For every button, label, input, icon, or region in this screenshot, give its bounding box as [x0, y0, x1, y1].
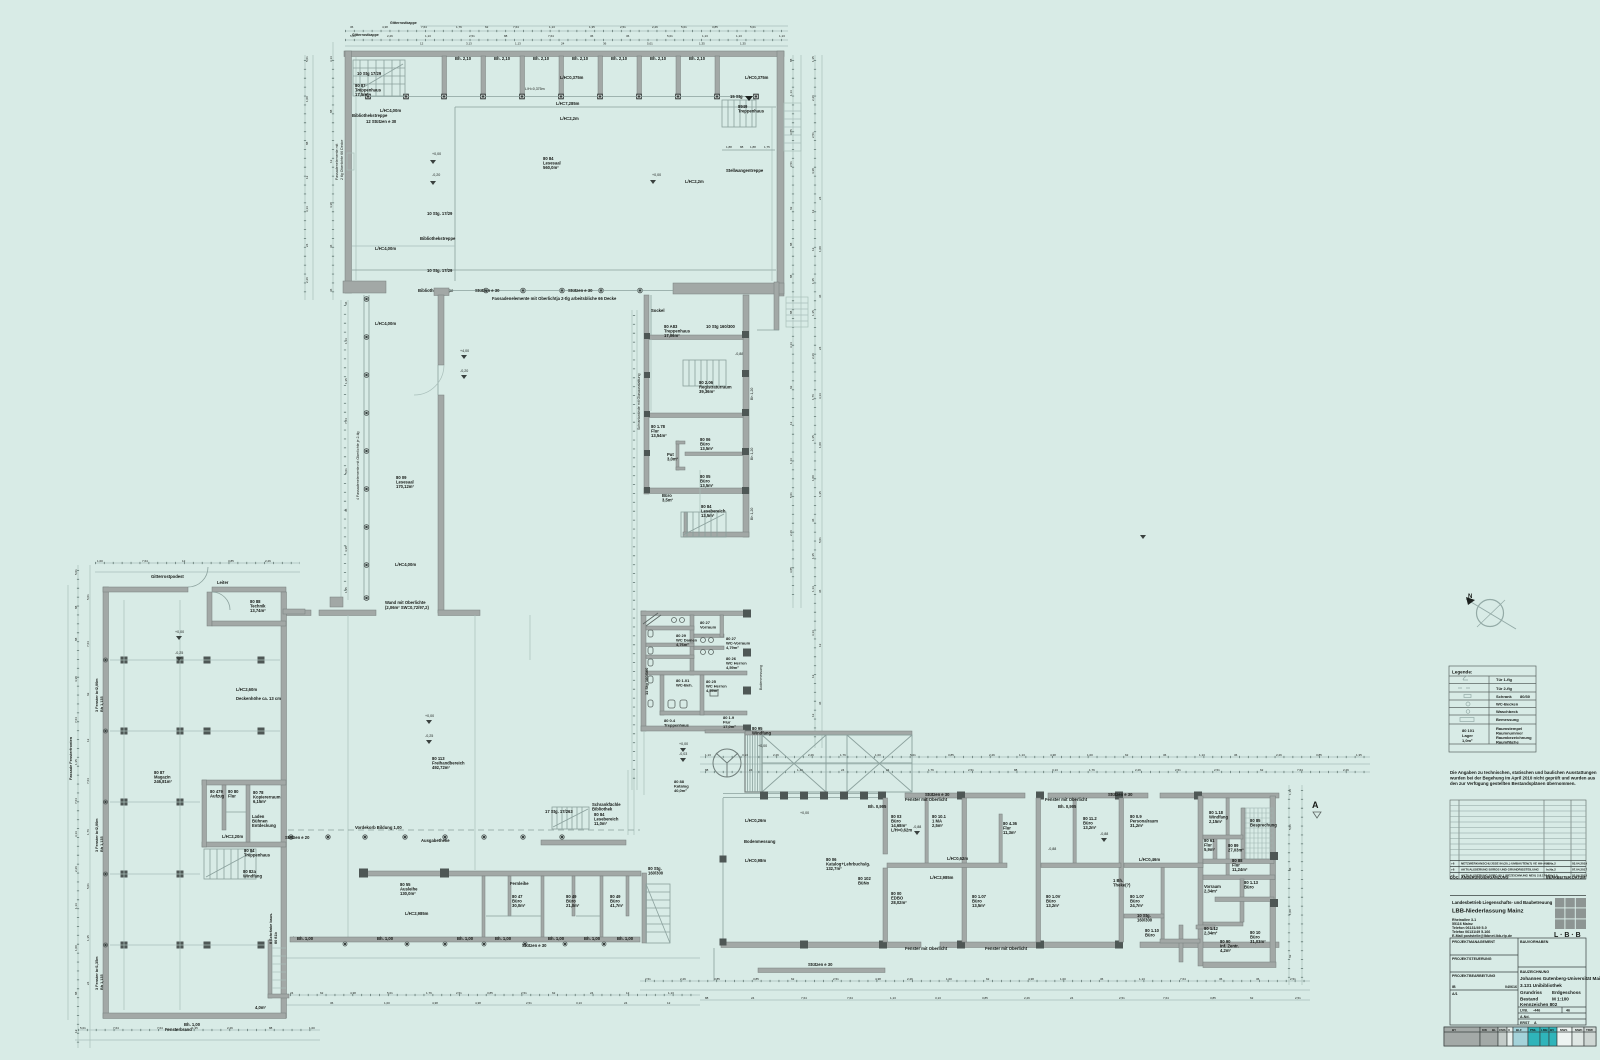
svg-text:5,01: 5,01 — [818, 537, 822, 543]
svg-text:L/H=2,2m: L/H=2,2m — [685, 179, 704, 184]
svg-text:2,34m²: 2,34m² — [1204, 889, 1218, 894]
svg-text:5,01: 5,01 — [1288, 824, 1292, 830]
svg-text:2,51: 2,51 — [645, 977, 651, 981]
svg-text:5,01: 5,01 — [305, 56, 309, 62]
svg-text:17,0m²: 17,0m² — [723, 724, 736, 729]
svg-text:Fassade Fensterfronten: Fassade Fensterfronten — [69, 736, 73, 780]
svg-text:IB: IB — [1452, 985, 1456, 989]
svg-text:7,64: 7,64 — [548, 34, 554, 38]
svg-text:3,85: 3,85 — [1210, 996, 1216, 1000]
svg-text:1,13: 1,13 — [549, 25, 555, 29]
svg-text:Besprechung: Besprechung — [1250, 823, 1277, 828]
svg-text:L/H=0,98m: L/H=0,98m — [745, 858, 766, 863]
svg-text:L/H=0,46m: L/H=0,46m — [1139, 857, 1160, 862]
svg-text:Schrankwände mit Glasausstattu: Schrankwände mit Glasausstattung — [637, 373, 641, 430]
svg-text:12: 12 — [811, 247, 815, 251]
svg-text:Bh 1,20: Bh 1,20 — [750, 508, 754, 520]
svg-text:3,85: 3,85 — [789, 129, 793, 135]
svg-text:12 Stützen e 30: 12 Stützen e 30 — [366, 119, 397, 124]
svg-text:88: 88 — [789, 242, 793, 246]
svg-text:12: 12 — [811, 209, 815, 213]
svg-text:24: 24 — [749, 768, 753, 772]
svg-text:Bh. 2,10: Bh. 2,10 — [611, 56, 628, 61]
svg-text:36: 36 — [330, 1001, 334, 1005]
svg-text:3,85: 3,85 — [753, 977, 759, 981]
svg-text:07.04.2017: 07.04.2017 — [1572, 868, 1587, 872]
svg-text:-0,25: -0,25 — [425, 734, 433, 738]
svg-text:24: 24 — [86, 981, 90, 985]
svg-text:36: 36 — [329, 288, 333, 292]
svg-text:2,26: 2,26 — [773, 753, 779, 757]
svg-text:2,51: 2,51 — [456, 991, 462, 995]
svg-text:3,13: 3,13 — [811, 630, 815, 636]
svg-text:Fenster mit Oberlicht: Fenster mit Oberlicht — [905, 946, 948, 951]
svg-text:2,51: 2,51 — [968, 768, 974, 772]
svg-text:1,76: 1,76 — [1089, 768, 1095, 772]
svg-text:Bemessung: Bemessung — [1496, 717, 1519, 722]
svg-text:2,51: 2,51 — [526, 1001, 532, 1005]
svg-text:7,64: 7,64 — [86, 641, 90, 647]
svg-text:2,26: 2,26 — [907, 977, 913, 981]
svg-text:1,35: 1,35 — [589, 25, 595, 29]
svg-text:Gitterrostpodest: Gitterrostpodest — [151, 574, 184, 579]
svg-text:13,2m²: 13,2m² — [1046, 903, 1060, 908]
svg-text:PROJEKTBEARBEITUNG: PROJEKTBEARBEITUNG — [1452, 974, 1496, 978]
svg-text:L/H=0,62m: L/H=0,62m — [947, 856, 968, 861]
svg-text:5,01: 5,01 — [667, 34, 673, 38]
svg-text:Fassadenelemente mit: Fassadenelemente mit — [335, 144, 339, 180]
svg-text:24: 24 — [290, 991, 294, 995]
svg-text:+0,00: +0,00 — [679, 742, 688, 746]
svg-text:2,26: 2,26 — [680, 977, 686, 981]
svg-text:-0,88: -0,88 — [1048, 847, 1056, 851]
svg-text:1,75: 1,75 — [764, 145, 770, 149]
svg-text:7,64: 7,64 — [74, 717, 78, 723]
svg-text:Bh. 2,10: Bh. 2,10 — [494, 56, 511, 61]
svg-text:1,00: 1,00 — [1288, 909, 1292, 915]
svg-text:Gitterrostkappe: Gitterrostkappe — [352, 33, 379, 37]
svg-text:L/H=0,26m: L/H=0,26m — [745, 818, 766, 823]
svg-text:WC-Becken: WC-Becken — [1496, 702, 1519, 707]
svg-text:1,76: 1,76 — [840, 753, 846, 757]
svg-text:24: 24 — [590, 991, 594, 995]
svg-text:12: 12 — [811, 713, 815, 717]
svg-text:M 1:100: M 1:100 — [1552, 997, 1569, 1002]
svg-text:1,35: 1,35 — [811, 310, 815, 316]
svg-text:L/H=0,375m: L/H=0,375m — [560, 75, 584, 80]
svg-text:Bh. 1,00: Bh. 1,00 — [297, 936, 314, 941]
svg-text:2,26: 2,26 — [227, 1026, 233, 1030]
svg-text:DATUM: DATUM — [1572, 875, 1585, 879]
svg-text:LVB.: LVB. — [1520, 1009, 1528, 1013]
svg-text:24: 24 — [818, 196, 822, 200]
svg-text:5,01: 5,01 — [789, 492, 793, 498]
svg-text:Johannes Gutenberg-Universität: Johannes Gutenberg-Universität Mainz — [1520, 976, 1600, 981]
svg-text:Bibliothekstreppe: Bibliothekstreppe — [352, 113, 388, 118]
svg-text:39,36m²: 39,36m² — [699, 389, 715, 394]
svg-text:3,85: 3,85 — [714, 977, 720, 981]
svg-text:31,03m²: 31,03m² — [1250, 939, 1266, 944]
svg-text:62: 62 — [1250, 996, 1254, 1000]
svg-text:4,59m²: 4,59m² — [726, 665, 739, 670]
svg-text:1,76: 1,76 — [86, 829, 90, 835]
svg-text:Windfang: Windfang — [243, 874, 262, 879]
svg-text:Bestand: Bestand — [1520, 997, 1538, 1002]
svg-text:1,35: 1,35 — [811, 56, 815, 62]
svg-text:Bh 1,20: Bh 1,20 — [750, 388, 754, 400]
svg-text:Treppenhaus: Treppenhaus — [664, 723, 690, 728]
svg-text:4,38: 4,38 — [811, 168, 815, 174]
svg-text:40,0m²: 40,0m² — [674, 788, 687, 793]
svg-text:3,85: 3,85 — [712, 25, 718, 29]
svg-text:3,13: 3,13 — [305, 206, 309, 212]
svg-text:1,13: 1,13 — [736, 34, 742, 38]
svg-text:1,13: 1,13 — [890, 996, 896, 1000]
svg-text:Flur: Flur — [228, 794, 236, 799]
svg-text:2,51: 2,51 — [1175, 768, 1181, 772]
svg-text:2,26: 2,26 — [74, 866, 78, 872]
svg-text:L/H=2,2m: L/H=2,2m — [560, 116, 579, 121]
svg-text:11,0m²: 11,0m² — [594, 821, 608, 826]
svg-text:1,13: 1,13 — [344, 338, 348, 344]
svg-text:1,00: 1,00 — [309, 1026, 315, 1030]
svg-text:1,35: 1,35 — [740, 42, 746, 46]
svg-text:1,13: 1,13 — [789, 458, 793, 464]
svg-text:1,00: 1,00 — [305, 96, 309, 102]
svg-text:88: 88 — [74, 637, 78, 641]
svg-text:1,00: 1,00 — [818, 442, 822, 448]
svg-text:17 Stg. 17/263: 17 Stg. 17/263 — [545, 809, 573, 814]
svg-text:1,13: 1,13 — [705, 753, 711, 757]
svg-text:27,03m²: 27,03m² — [1228, 848, 1244, 853]
svg-text:4 Fassadenelemente mit Oberlic: 4 Fassadenelemente mit Oberlichte je 2-t… — [356, 431, 360, 500]
svg-text:36: 36 — [329, 244, 333, 248]
svg-text:Stützen e 30: Stützen e 30 — [808, 962, 833, 967]
svg-text:13,5m²: 13,5m² — [972, 903, 986, 908]
svg-text:12: 12 — [86, 738, 90, 742]
svg-text:88: 88 — [789, 274, 793, 278]
svg-text:-0,03: -0,03 — [679, 752, 687, 756]
svg-text:7,64: 7,64 — [113, 1026, 119, 1030]
svg-text:1,35: 1,35 — [86, 935, 90, 941]
svg-text:Stellwangentreppe: Stellwangentreppe — [726, 168, 764, 173]
svg-text:5,01: 5,01 — [350, 34, 356, 38]
svg-text:1,13: 1,13 — [811, 586, 815, 592]
svg-text:040616: 040616 — [1505, 985, 1517, 989]
svg-text:1,13: 1,13 — [74, 903, 78, 909]
svg-text:4,38: 4,38 — [432, 1001, 438, 1005]
svg-text:3.131 Unibibliothek: 3.131 Unibibliothek — [1520, 983, 1562, 988]
svg-text:ERST: ERST — [1520, 1021, 1530, 1025]
svg-text:1,35: 1,35 — [818, 491, 822, 497]
svg-text:Erdgeschoss: Erdgeschoss — [1552, 990, 1581, 995]
svg-text:2,26: 2,26 — [789, 530, 793, 536]
svg-text:1,00: 1,00 — [74, 945, 78, 951]
svg-text:Windfang: Windfang — [752, 731, 771, 736]
svg-text:+6: +6 — [1451, 862, 1455, 866]
svg-text:7,64: 7,64 — [513, 25, 519, 29]
svg-text:1,13: 1,13 — [1199, 753, 1205, 757]
svg-text:2,26: 2,26 — [811, 95, 815, 101]
svg-text:1,00: 1,00 — [384, 1001, 390, 1005]
svg-text:1,13: 1,13 — [515, 42, 521, 46]
svg-text:3,85: 3,85 — [789, 567, 793, 573]
svg-text:3,13: 3,13 — [789, 342, 793, 348]
svg-text:160/300: 160/300 — [648, 871, 664, 876]
svg-text:Stützen e 30: Stützen e 30 — [1108, 792, 1133, 797]
svg-text:Theke(?): Theke(?) — [1113, 883, 1131, 888]
svg-text:1,13: 1,13 — [1288, 789, 1292, 795]
svg-text:A/1: A/1 — [1452, 992, 1458, 996]
svg-text:3,13: 3,13 — [329, 56, 333, 62]
svg-text:36: 36 — [626, 34, 630, 38]
svg-text:160/300: 160/300 — [1137, 918, 1153, 923]
svg-text:Bh. 1,00: Bh. 1,00 — [548, 936, 565, 941]
svg-text:2,51: 2,51 — [1290, 977, 1296, 981]
svg-text:2,51: 2,51 — [833, 977, 839, 981]
svg-text:2,15m²: 2,15m² — [1209, 819, 1223, 824]
svg-text:88: 88 — [305, 141, 309, 145]
svg-text:Entdeckung: Entdeckung — [252, 823, 276, 828]
svg-text:62: 62 — [1288, 954, 1292, 958]
svg-text:5,01: 5,01 — [86, 883, 90, 889]
svg-text:4,0m²: 4,0m² — [255, 1005, 267, 1010]
svg-text:17,5m²: 17,5m² — [355, 92, 369, 97]
svg-text:3 Fenster br/2,00m: 3 Fenster br/2,00m — [95, 678, 99, 712]
svg-text:62: 62 — [86, 692, 90, 696]
svg-text:Bh. 0,905: Bh. 0,905 — [868, 804, 887, 809]
svg-text:Tür 1-flg: Tür 1-flg — [1496, 677, 1513, 682]
svg-text:KW: KW — [1482, 1028, 1487, 1032]
svg-text:Vorraum: Vorraum — [700, 625, 717, 630]
svg-text:L/H=0,375m: L/H=0,375m — [745, 75, 769, 80]
svg-text:E-Mail poststelle@lbbnet.lbb-r: E-Mail poststelle@lbbnet.lbb-rlp.de — [1452, 934, 1512, 938]
svg-text:+0,00: +0,00 — [175, 630, 184, 634]
svg-text:-0,20: -0,20 — [460, 369, 468, 373]
svg-text:1,35: 1,35 — [1356, 753, 1362, 757]
svg-text:2,51: 2,51 — [469, 34, 475, 38]
svg-text:Kennzeichen 802: Kennzeichen 802 — [1520, 1002, 1558, 1007]
svg-text:L/H=2,985m: L/H=2,985m — [930, 875, 954, 880]
svg-text:Fenster mit Oberlicht: Fenster mit Oberlicht — [985, 946, 1028, 951]
svg-text:PROJEKTSTEUERUNG: PROJEKTSTEUERUNG — [1452, 957, 1492, 961]
svg-text:24: 24 — [751, 996, 755, 1000]
svg-text:36: 36 — [350, 25, 354, 29]
svg-text:Bh 1,135: Bh 1,135 — [100, 974, 104, 990]
svg-text:2,26: 2,26 — [1276, 753, 1282, 757]
svg-text:1,35: 1,35 — [811, 278, 815, 284]
svg-text:4,38: 4,38 — [350, 991, 356, 995]
svg-text:88: 88 — [269, 1026, 273, 1030]
svg-text:1,13: 1,13 — [797, 768, 803, 772]
svg-text:5,01: 5,01 — [681, 25, 687, 29]
svg-text:24: 24 — [818, 346, 822, 350]
svg-text:Bodenmessung: Bodenmessung — [744, 839, 776, 844]
svg-text:N: N — [1468, 594, 1472, 600]
svg-text:Büro: Büro — [1244, 885, 1254, 890]
svg-text:Bh. 0,905: Bh. 0,905 — [1058, 804, 1077, 809]
svg-text:15 Stg: 15 Stg — [730, 94, 743, 99]
svg-text:2 tlg Oberlichte 66 Decke: 2 tlg Oberlichte 66 Decke — [340, 140, 344, 180]
svg-text:PROJEKTMANAGEMENT: PROJEKTMANAGEMENT — [1452, 940, 1496, 944]
svg-text:7,64: 7,64 — [74, 798, 78, 804]
svg-text:2,26: 2,26 — [265, 559, 271, 563]
svg-text:2,26: 2,26 — [811, 353, 815, 359]
svg-text:1,00: 1,00 — [875, 753, 881, 757]
svg-text:88: 88 — [504, 34, 508, 38]
svg-text:Stützen e 20: Stützen e 20 — [285, 835, 310, 840]
svg-text:88: 88 — [74, 991, 78, 995]
svg-text:62: 62 — [1260, 768, 1264, 772]
svg-text:62: 62 — [789, 206, 793, 210]
svg-text:BAUVORHABEN: BAUVORHABEN — [1520, 940, 1549, 944]
svg-text:24: 24 — [561, 42, 565, 46]
svg-text:3,13: 3,13 — [466, 42, 472, 46]
svg-text:5,01: 5,01 — [80, 1026, 86, 1030]
svg-text:Bodenmessung: Bodenmessung — [759, 665, 763, 690]
svg-text:36: 36 — [344, 508, 348, 512]
svg-text:2,51: 2,51 — [521, 991, 527, 995]
svg-text:2,26: 2,26 — [1343, 768, 1349, 772]
svg-text:4,59m²: 4,59m² — [706, 688, 719, 693]
svg-text:3,13: 3,13 — [818, 393, 822, 399]
svg-text:1,13: 1,13 — [702, 34, 708, 38]
svg-text:L/H=4,00m: L/H=4,00m — [380, 108, 401, 113]
svg-text:10 Stg. 17/29: 10 Stg. 17/29 — [427, 268, 453, 273]
svg-text:Schrank: Schrank — [1496, 694, 1513, 699]
svg-text:5,01: 5,01 — [387, 991, 393, 995]
svg-text:62: 62 — [1125, 753, 1129, 757]
svg-text:den zur Verfügung gestellten B: den zur Verfügung gestellten Bestandsplä… — [1450, 781, 1576, 786]
svg-text:3,0m²: 3,0m² — [667, 457, 679, 462]
svg-text:ÄNDERUNG/ERGÄNZUNG: ÄNDERUNG/ERGÄNZUNG — [1461, 875, 1509, 879]
svg-text:1,0m²: 1,0m² — [1462, 738, 1473, 743]
svg-text:2,34m²: 2,34m² — [1204, 931, 1218, 936]
svg-text:4,38: 4,38 — [382, 25, 388, 29]
svg-text:wurden bei der Begehung im Apr: wurden bei der Begehung im April 2010 ni… — [1449, 776, 1596, 781]
svg-text:7,64: 7,64 — [421, 25, 427, 29]
svg-text:36: 36 — [811, 518, 815, 522]
svg-text:Waschbeck: Waschbeck — [1496, 709, 1519, 714]
svg-text:+0,00: +0,00 — [652, 173, 661, 177]
svg-text:1,76: 1,76 — [426, 991, 432, 995]
svg-text:2,5m²: 2,5m² — [932, 823, 944, 828]
svg-text:24: 24 — [624, 1001, 628, 1005]
svg-text:36: 36 — [603, 42, 607, 46]
svg-text:13,74m²: 13,74m² — [250, 608, 266, 613]
svg-text:Landesbetrieb Liegenschafts- u: Landesbetrieb Liegenschafts- und Baubetr… — [1452, 900, 1553, 905]
svg-text:L/H=2,985m: L/H=2,985m — [405, 911, 429, 916]
svg-text:11,3m²: 11,3m² — [1003, 830, 1017, 835]
svg-text:1,88: 1,88 — [726, 145, 732, 149]
svg-text:2,51: 2,51 — [789, 161, 793, 167]
svg-text:3,5m²: 3,5m² — [662, 498, 674, 503]
svg-text:1,35: 1,35 — [811, 553, 815, 559]
svg-text:4,38: 4,38 — [1028, 977, 1034, 981]
svg-text:Fassadenelemente mit Oberlicht: Fassadenelemente mit Oberlichtja 2-tlg a… — [492, 296, 617, 301]
svg-text:Bh 1,135: Bh 1,135 — [100, 696, 104, 712]
svg-text:5,01: 5,01 — [74, 569, 78, 575]
svg-text:4,79m²: 4,79m² — [726, 645, 739, 650]
svg-text:Bh. 1,00: Bh. 1,00 — [495, 936, 512, 941]
svg-text:Bh. 2,10: Bh. 2,10 — [533, 56, 550, 61]
svg-text:88: 88 — [329, 109, 333, 113]
svg-text:6,15m²: 6,15m² — [253, 799, 267, 804]
svg-text:2,51: 2,51 — [620, 25, 626, 29]
svg-text:Raumfläche: Raumfläche — [1496, 740, 1519, 745]
svg-text:Grundriss: Grundriss — [1520, 990, 1542, 995]
svg-text:Sockel: Sockel — [651, 308, 665, 313]
svg-text:L/H=4,00m: L/H=4,00m — [375, 321, 396, 326]
svg-text:1,35: 1,35 — [74, 759, 78, 765]
svg-text:62: 62 — [485, 25, 489, 29]
svg-text:4,38: 4,38 — [344, 546, 348, 552]
svg-text:88: 88 — [740, 145, 744, 149]
svg-text:Aufzug: Aufzug — [210, 794, 225, 799]
svg-text:2,26: 2,26 — [808, 753, 814, 757]
svg-text:12: 12 — [74, 1029, 78, 1033]
svg-text:36: 36 — [1219, 977, 1223, 981]
svg-text:BV: BV — [1550, 1028, 1554, 1032]
svg-text:7,64: 7,64 — [86, 778, 90, 784]
svg-text:62: 62 — [320, 991, 324, 995]
svg-text:24,7m²: 24,7m² — [1130, 903, 1144, 908]
svg-text:Tür 2-flg: Tür 2-flg — [1496, 686, 1513, 691]
svg-text:36: 36 — [1288, 867, 1292, 871]
svg-text:+0,00: +0,00 — [432, 152, 441, 156]
svg-text:7,64: 7,64 — [157, 1026, 163, 1030]
svg-text:-0,88: -0,88 — [913, 825, 921, 829]
svg-text:1,35: 1,35 — [811, 435, 815, 441]
svg-text:12: 12 — [818, 643, 822, 647]
svg-text:31,2m²: 31,2m² — [1130, 823, 1144, 828]
svg-text:1,00: 1,00 — [97, 559, 103, 563]
svg-text:+4,00: +4,00 — [460, 349, 469, 353]
svg-text:1,35: 1,35 — [344, 587, 348, 593]
svg-text:10 Stg 160/300: 10 Stg 160/300 — [706, 324, 736, 329]
svg-text:Stützen e 30: Stützen e 30 — [925, 792, 950, 797]
svg-text:Stützen e 30: Stützen e 30 — [475, 288, 500, 293]
svg-text:24: 24 — [1070, 996, 1074, 1000]
svg-text:-0,88: -0,88 — [1100, 832, 1108, 836]
svg-text:In.Na.2: In.Na.2 — [1546, 868, 1556, 872]
svg-text:3 Fenster br/1,35m: 3 Fenster br/1,35m — [95, 956, 99, 990]
svg-text:3 Fenster br/2,00m: 3 Fenster br/2,00m — [95, 818, 99, 852]
svg-text:Vordekorb Bildung 1,00: Vordekorb Bildung 1,00 — [355, 825, 402, 830]
svg-text:Stützen e 30: Stützen e 30 — [568, 288, 593, 293]
svg-text:1,35: 1,35 — [699, 42, 705, 46]
svg-text:3,13: 3,13 — [935, 996, 941, 1000]
svg-text:3,13: 3,13 — [74, 831, 78, 837]
svg-text:62: 62 — [791, 977, 795, 981]
svg-text:L/H=2,20m: L/H=2,20m — [222, 834, 243, 839]
svg-text:PML: PML — [1530, 1028, 1537, 1032]
svg-text:Treppenhaus: Treppenhaus — [244, 853, 271, 858]
svg-text:17,06m²: 17,06m² — [664, 333, 680, 338]
svg-text:36: 36 — [590, 34, 594, 38]
svg-text:12: 12 — [329, 159, 333, 163]
svg-text:1,35: 1,35 — [344, 378, 348, 384]
svg-text:3,13: 3,13 — [1052, 768, 1058, 772]
svg-text:2,26: 2,26 — [989, 753, 995, 757]
svg-text:BAUZEICHNUNG: BAUZEICHNUNG — [1520, 970, 1549, 974]
svg-text:80 81b: 80 81b — [274, 931, 278, 944]
svg-text:2,51: 2,51 — [1214, 768, 1220, 772]
svg-text:Bh. 2,10: Bh. 2,10 — [650, 56, 667, 61]
svg-text:62: 62 — [789, 385, 793, 389]
svg-text:WC-Beh.: WC-Beh. — [676, 683, 693, 688]
svg-text:BL: BL — [1492, 1028, 1496, 1032]
